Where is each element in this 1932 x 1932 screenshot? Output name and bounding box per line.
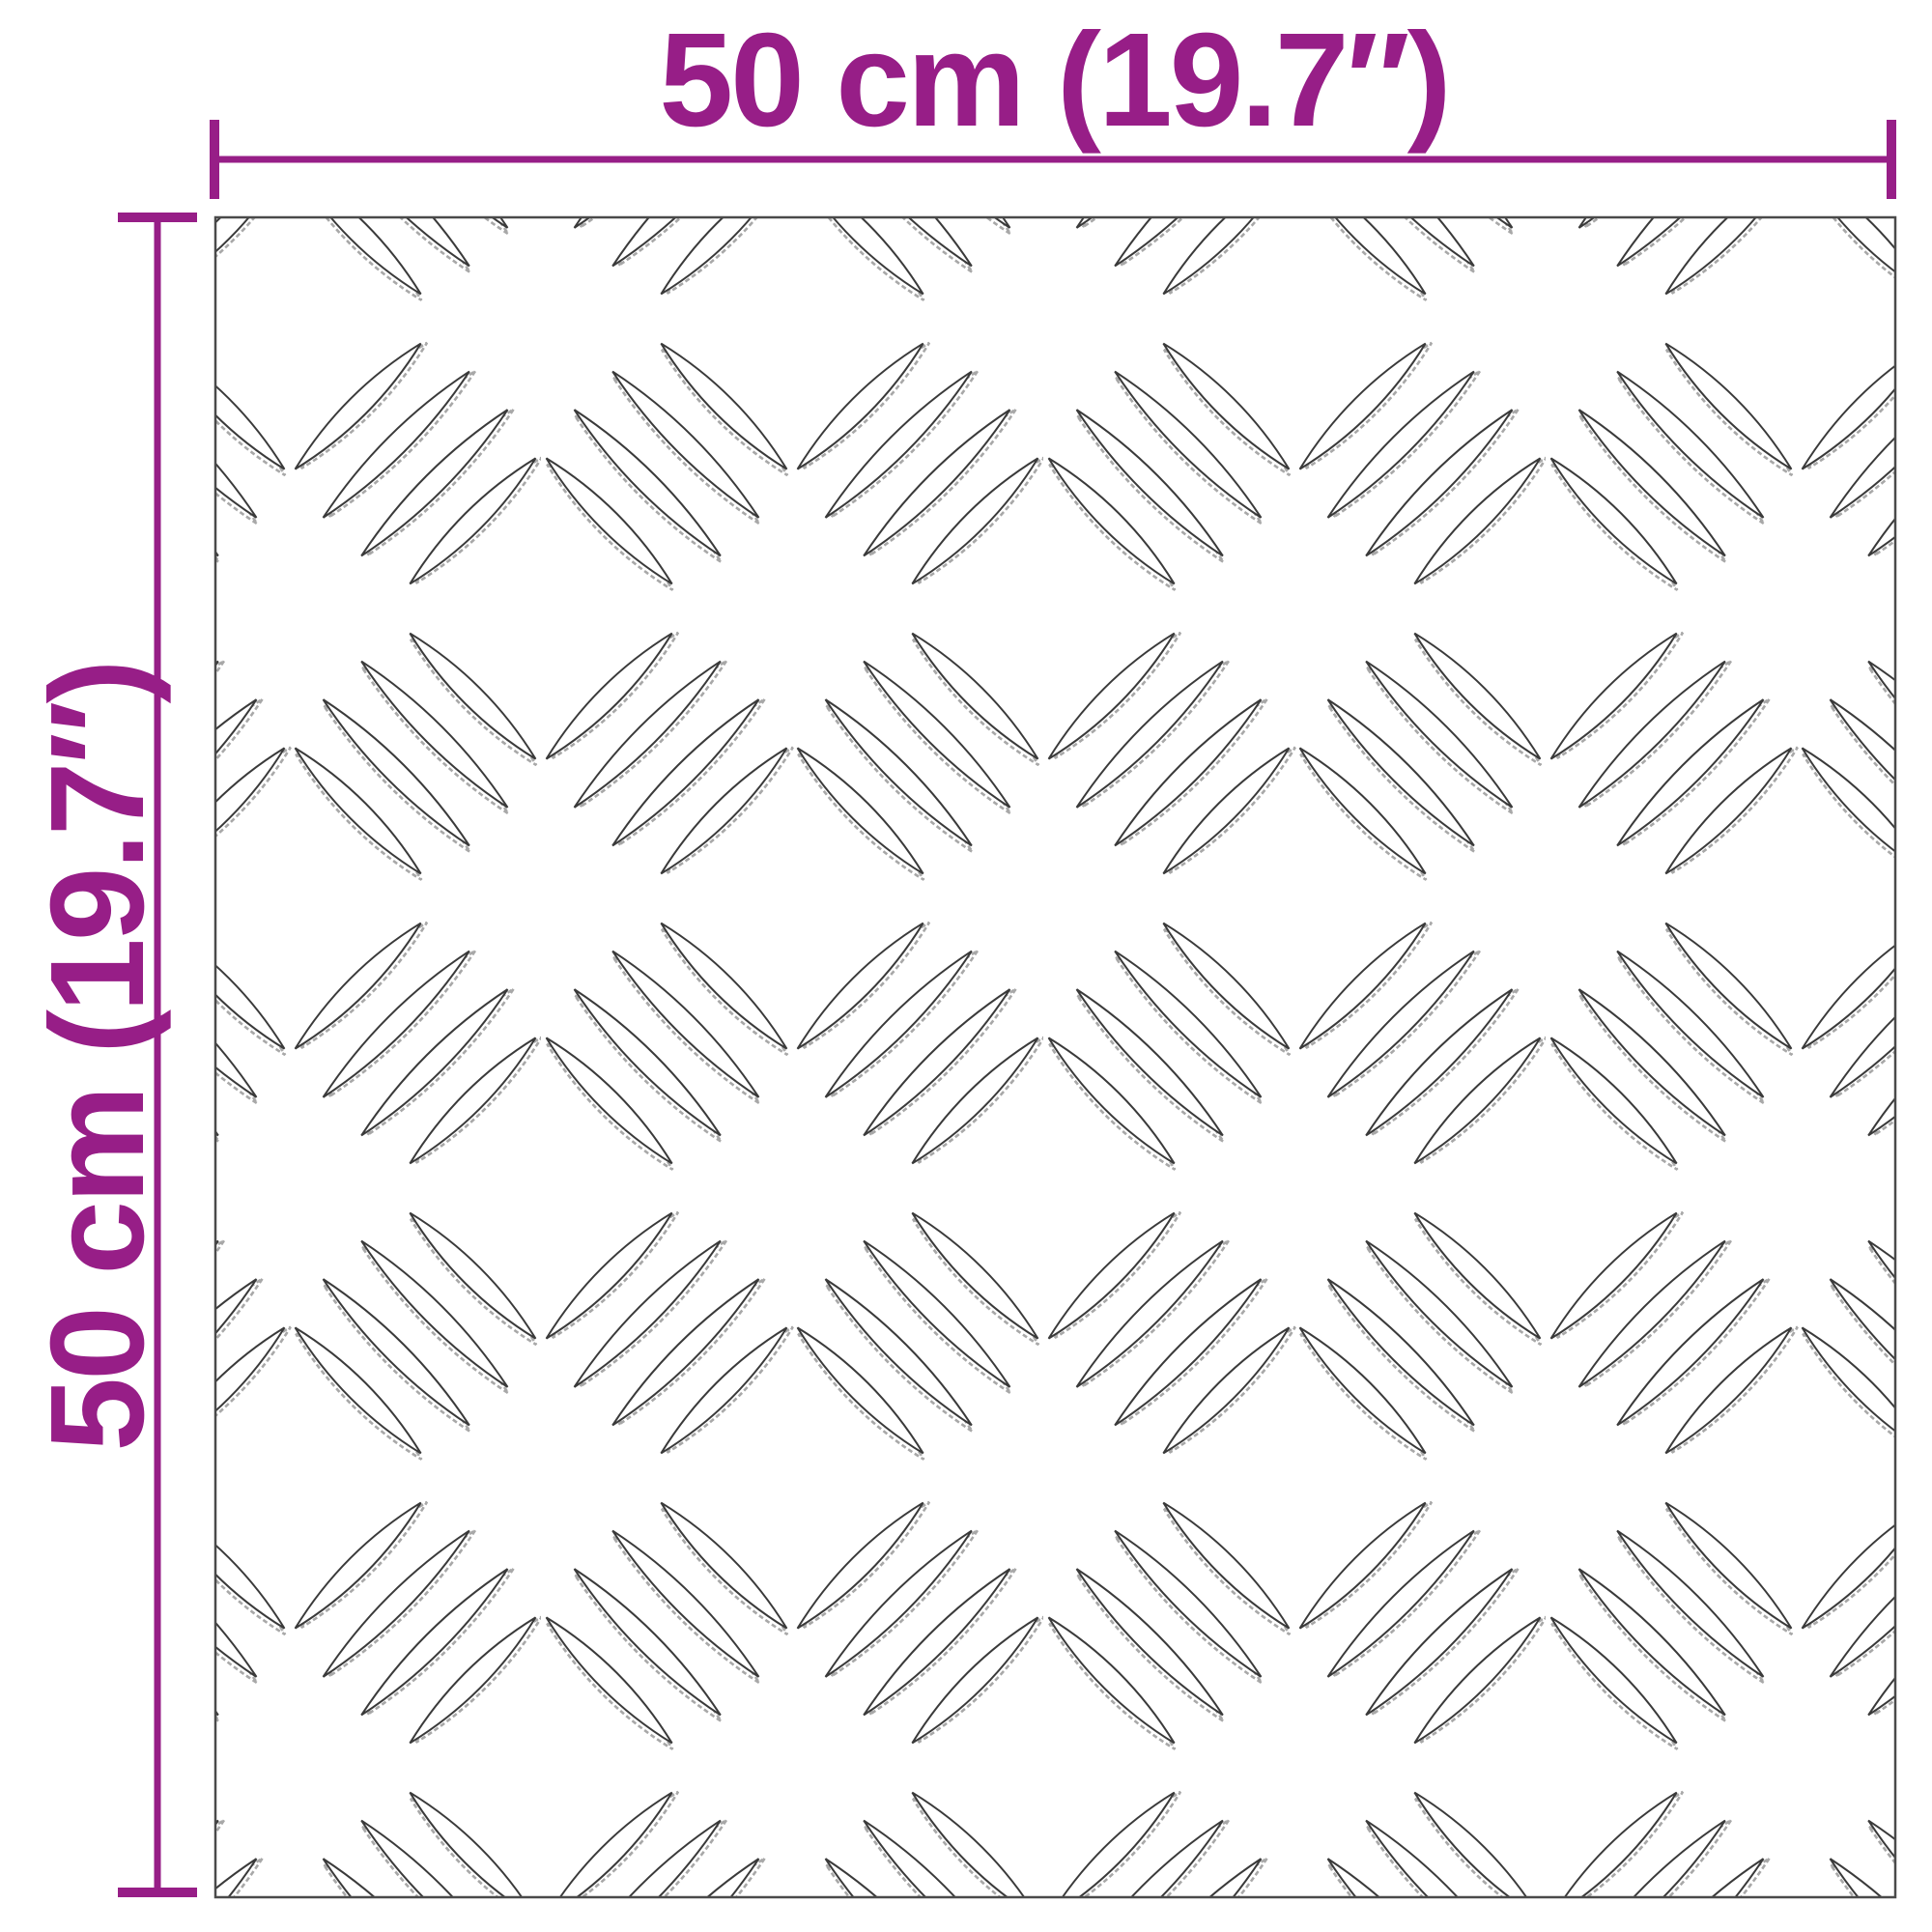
height-dimension: 50 cm (19.7″) bbox=[23, 217, 197, 1895]
checker-plate-texture bbox=[215, 217, 1895, 1897]
width-dimension-label: 50 cm (19.7″) bbox=[659, 6, 1448, 155]
width-dimension: 50 cm (19.7″) bbox=[214, 6, 1893, 199]
dimension-diagram-canvas: 50 cm (19.7″) 50 cm (19.7″) bbox=[0, 0, 1932, 1932]
product-dimension-image: 50 cm (19.7″) 50 cm (19.7″) bbox=[0, 0, 1932, 1932]
height-dimension-label: 50 cm (19.7″) bbox=[23, 662, 172, 1451]
